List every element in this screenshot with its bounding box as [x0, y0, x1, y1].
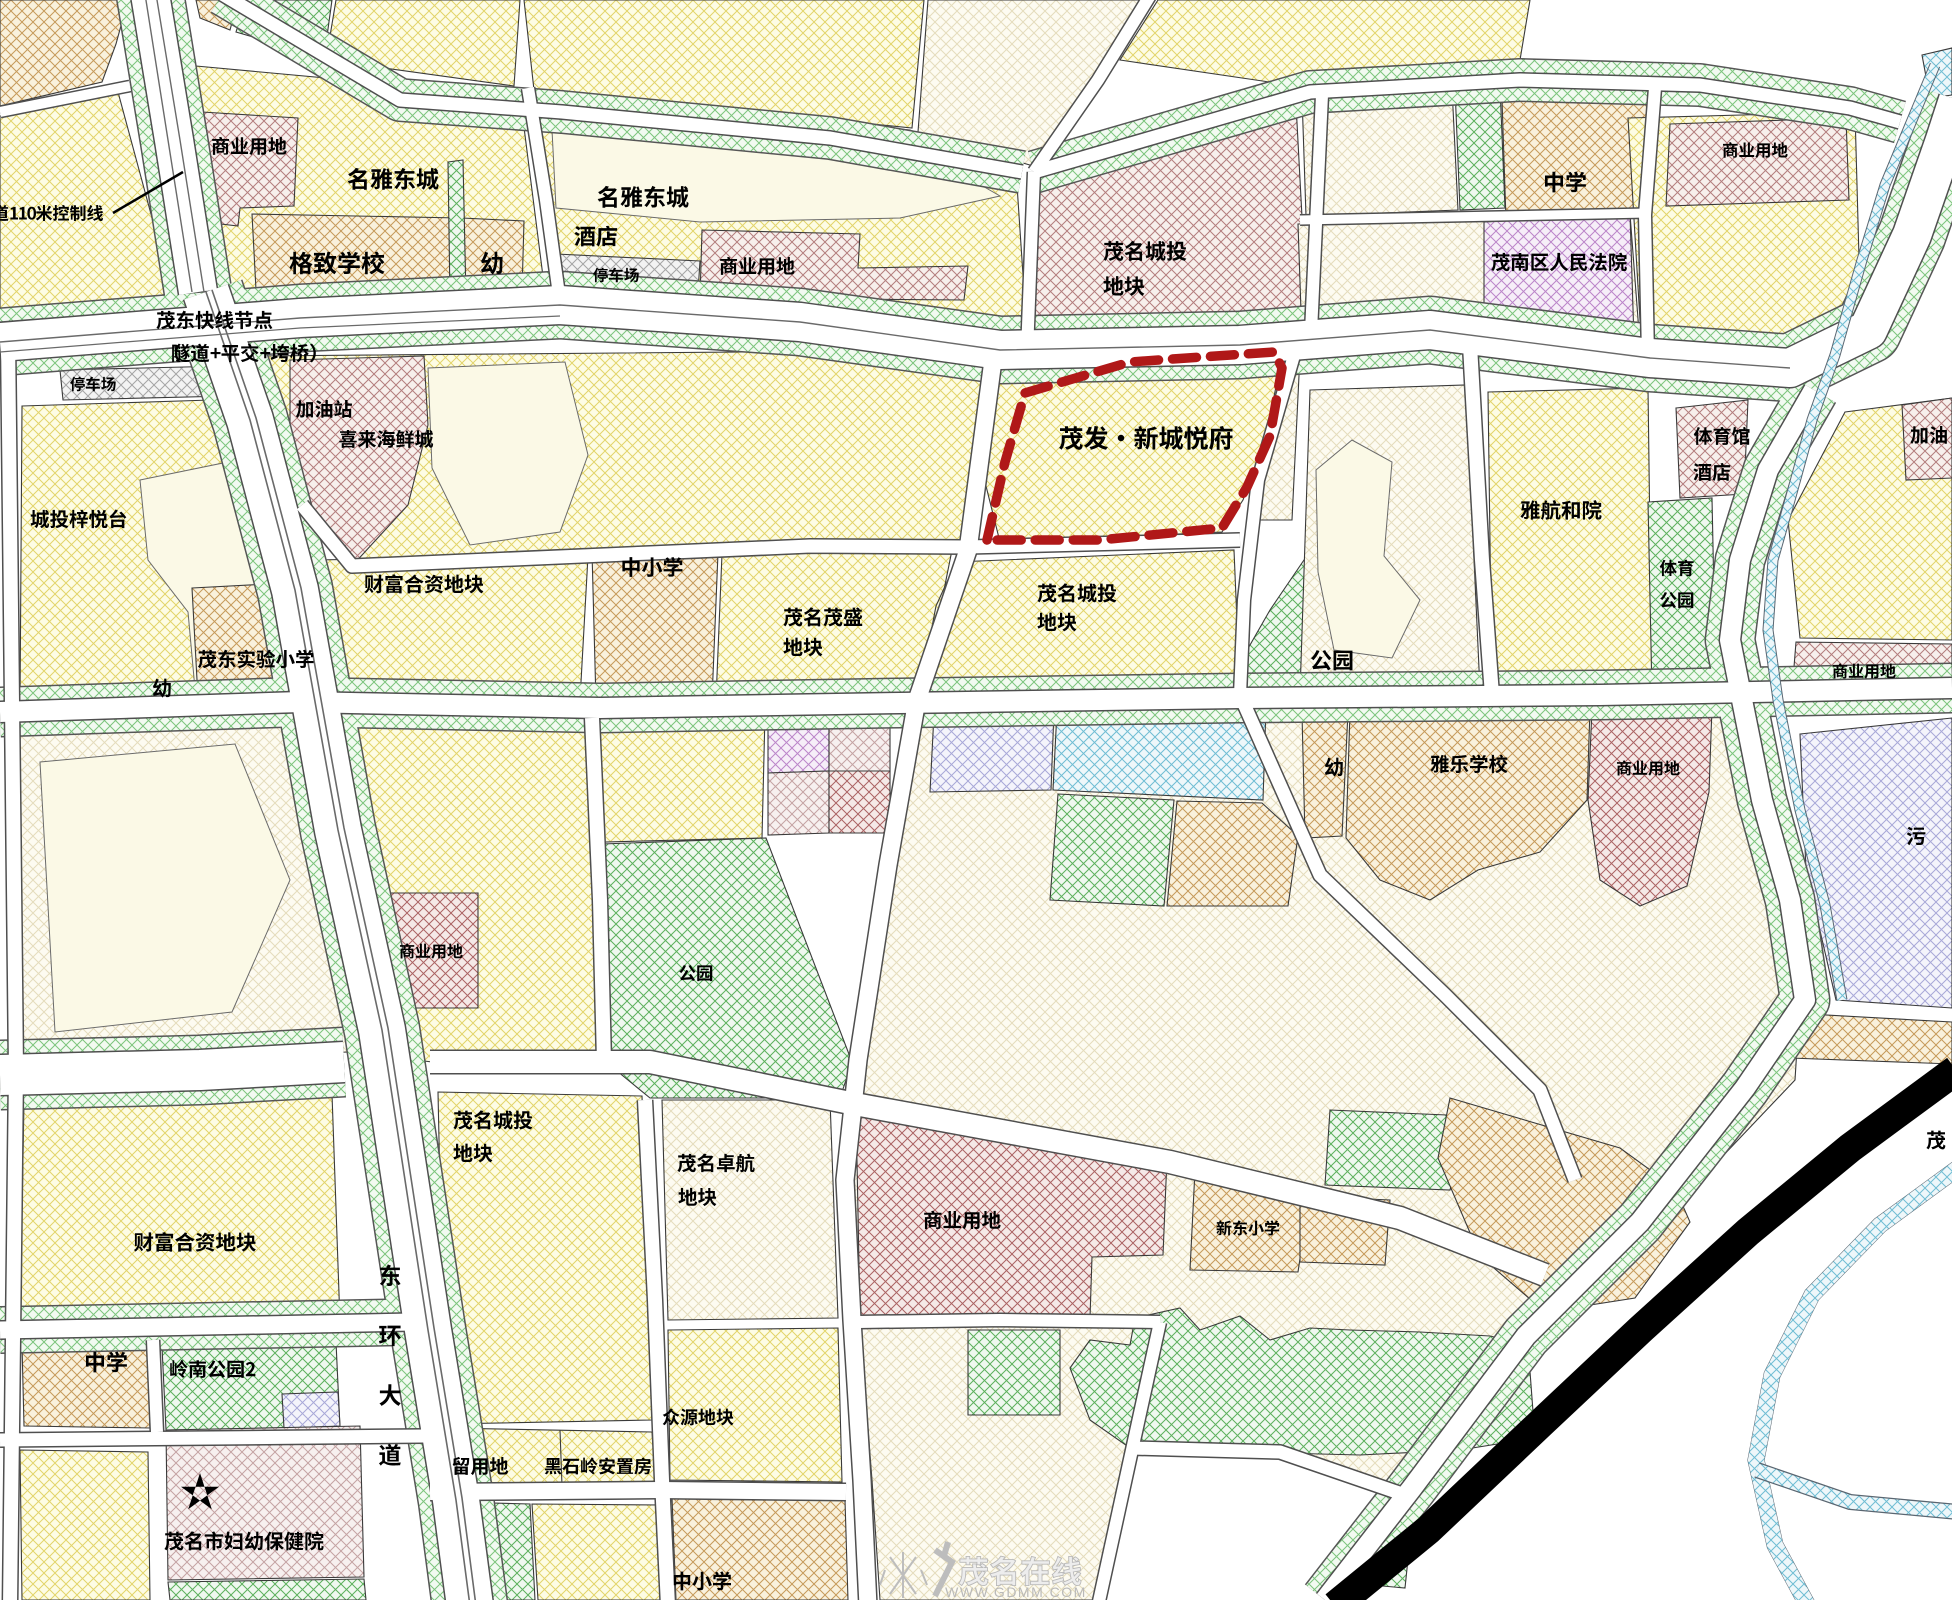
svg-text:WWW.GDMM.COM: WWW.GDMM.COM — [945, 1584, 1087, 1600]
